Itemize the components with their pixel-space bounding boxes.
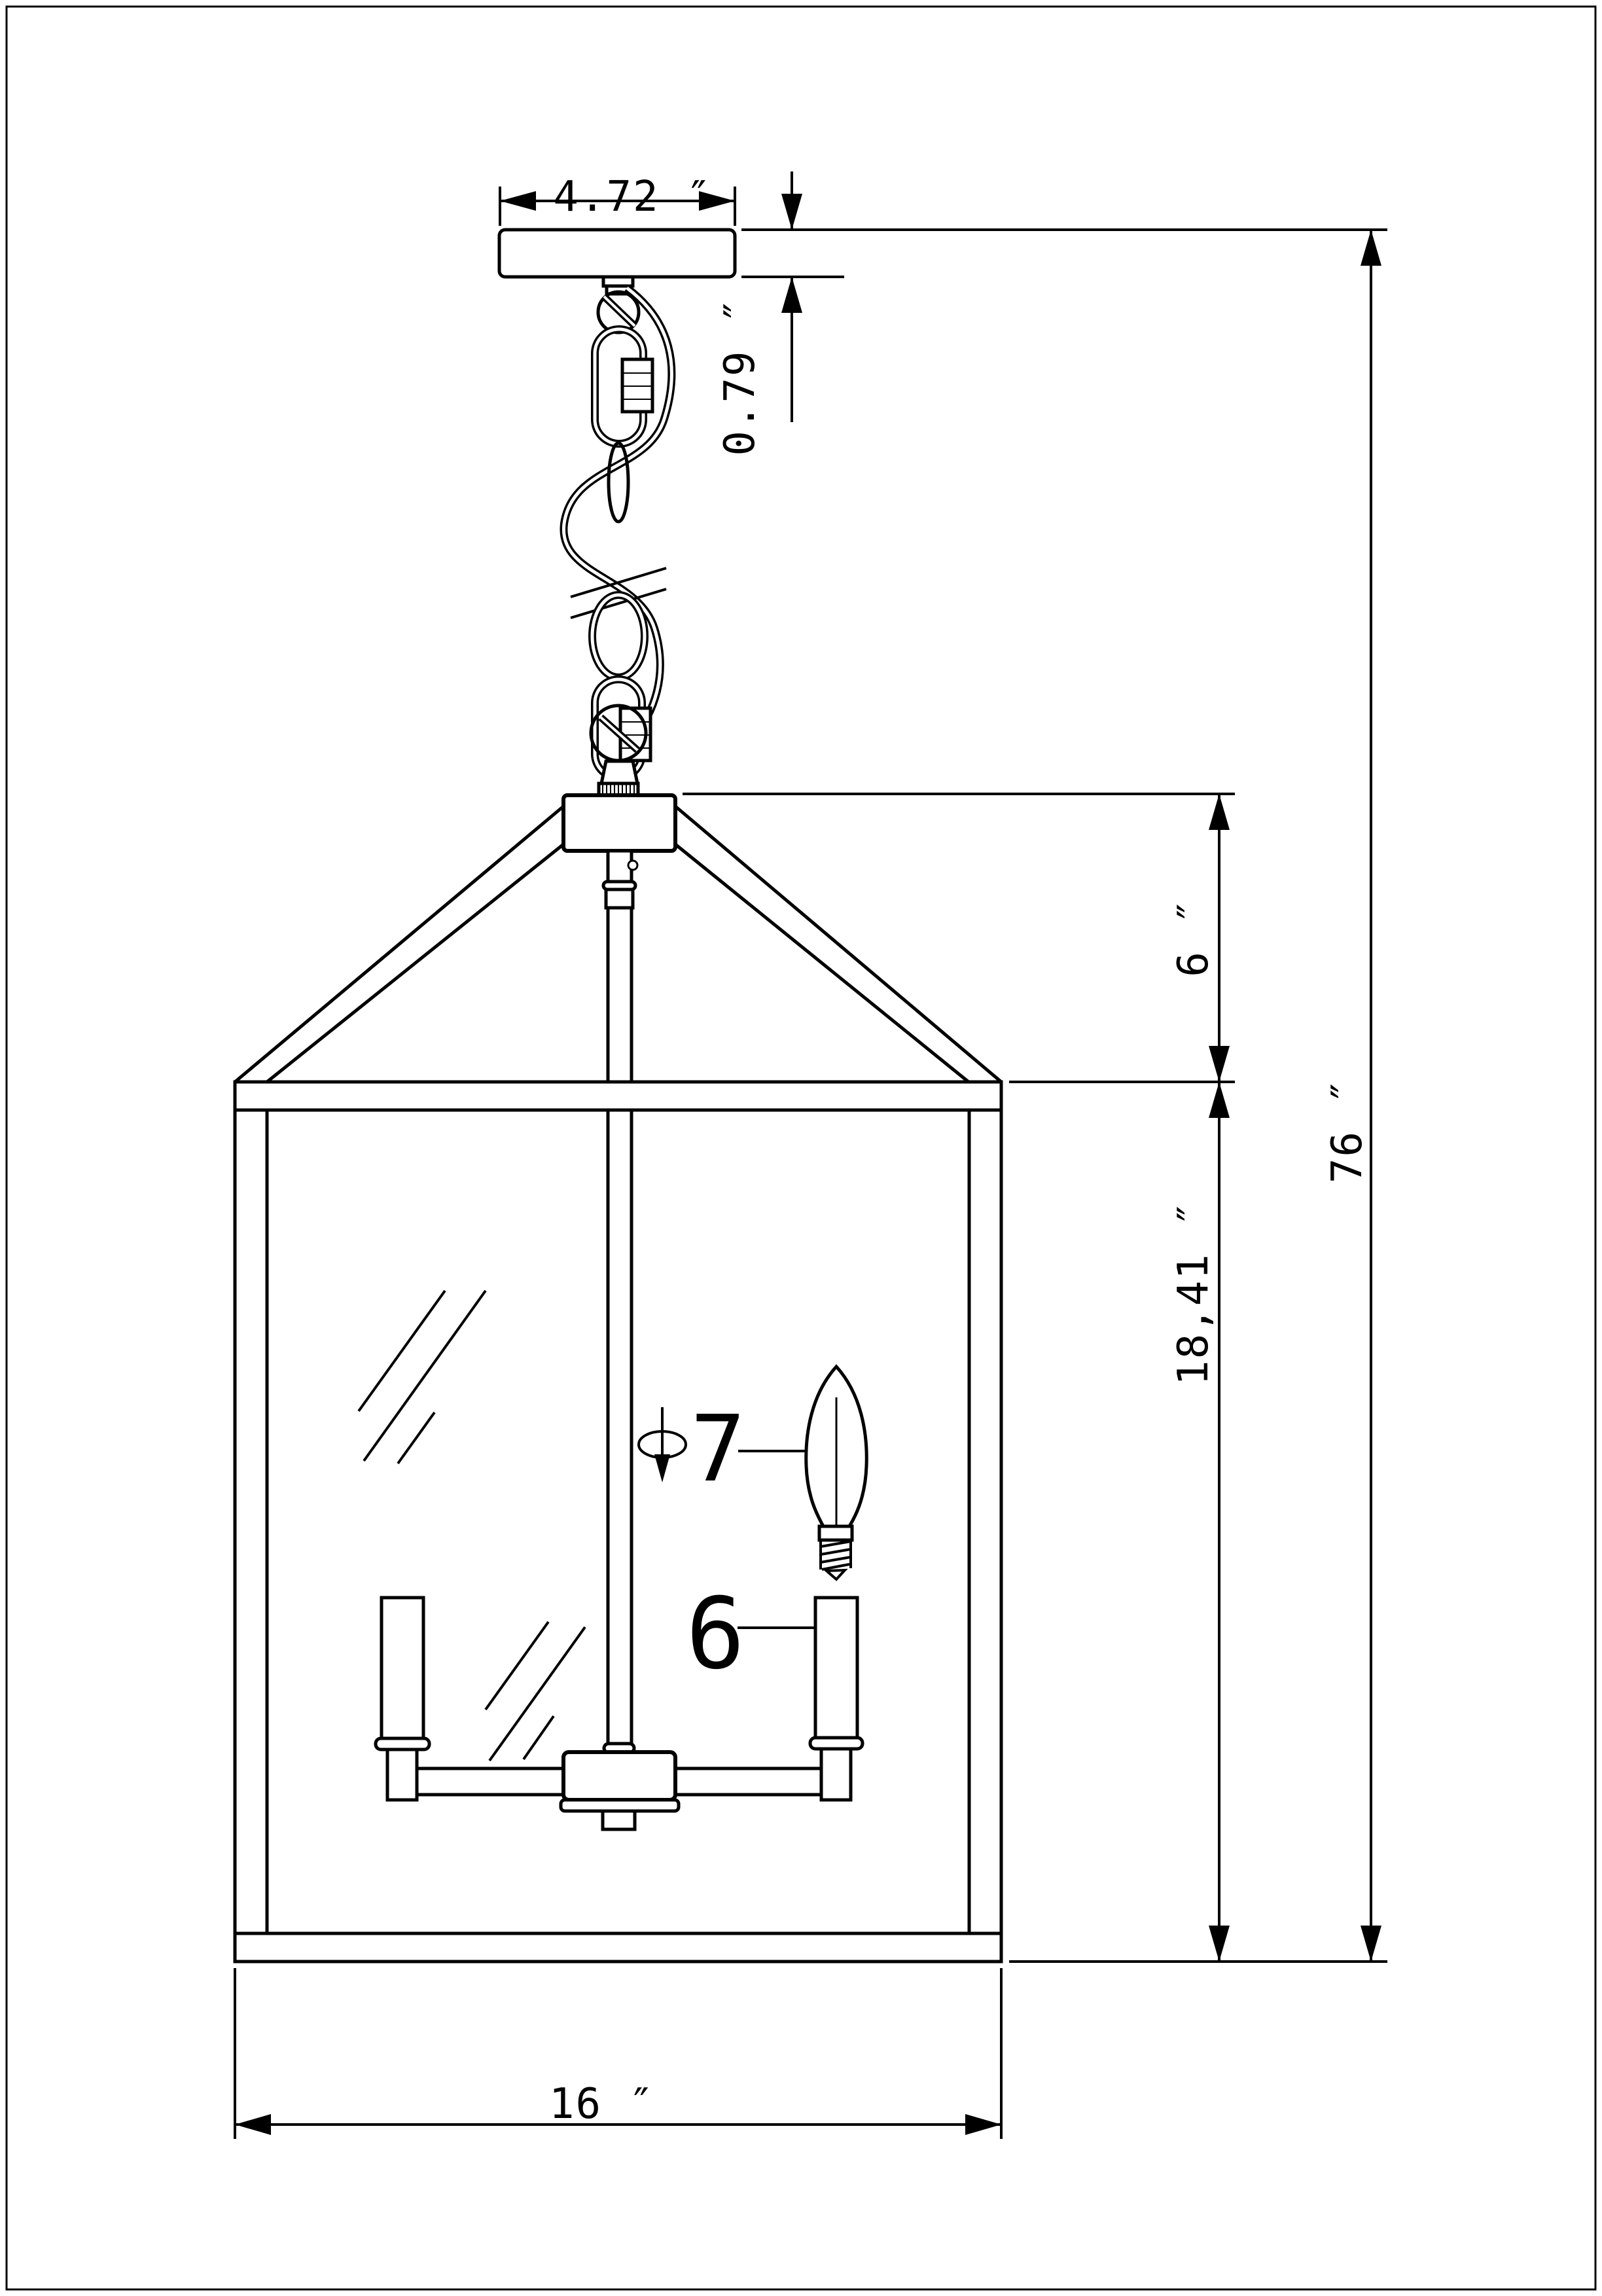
phi-arrow-icon [639,1407,686,1482]
dimension-body-height: 18,41 ″ [1169,1082,1230,1962]
drawing-page: 4.72 ″ 0.79 ″ 6 ″ 18,41 ″ 76 ″ [0,0,1602,2296]
ceiling-canopy [499,230,735,294]
dimension-overall-height: 76 ″ [1009,230,1387,1962]
socket-callout-text: 6 [686,1577,745,1691]
bulb-callout-text: 7 [690,1396,745,1503]
power-wire [563,288,671,740]
dimension-canopy-height: 0.79 ″ [716,171,1387,456]
screw-base [821,1539,851,1579]
dimension-roof-height: 6 ″ [683,794,1235,1082]
dim-text-overall-height: 76 ″ [1323,1077,1372,1183]
dim-text-body-width: 16 ″ [549,2080,655,2128]
dim-text-canopy-height: 0.79 ″ [716,296,764,456]
dim-text-canopy-width: 4.72 ″ [553,173,712,221]
dim-text-body-height: 18,41 ″ [1169,1200,1218,1386]
dim-text-roof-height: 6 ″ [1169,897,1218,977]
bulb-callout: 7 [639,1396,806,1503]
candle-bulb [806,1367,866,1579]
pendant-light-technical-drawing: 4.72 ″ 0.79 ″ 6 ″ 18,41 ″ 76 ″ [0,0,1602,2296]
dimension-canopy-width: 4.72 ″ [500,173,735,226]
socket-callout: 6 [686,1577,815,1691]
quick-link-sleeve [622,359,652,412]
top-hub-assembly [563,761,675,1749]
dimension-body-width: 16 ″ [235,1968,1001,2139]
